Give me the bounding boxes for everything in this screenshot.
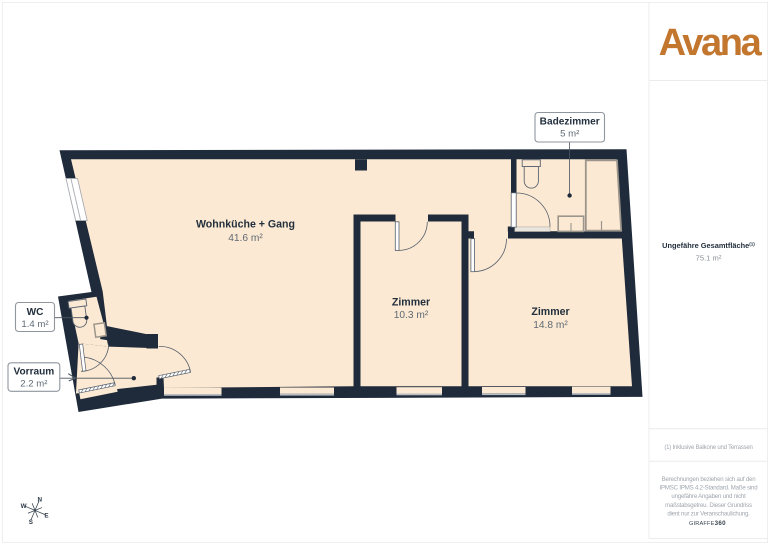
svg-text:14.8 m²: 14.8 m² [533, 320, 568, 331]
svg-text:1.4 m²: 1.4 m² [21, 319, 49, 330]
svg-text:2.2 m²: 2.2 m² [20, 378, 48, 389]
svg-text:41.6 m²: 41.6 m² [228, 233, 263, 244]
svg-text:GIRAFFE: GIRAFFE [689, 521, 715, 527]
svg-text:dient nur zur Veranschaulichun: dient nur zur Veranschaulichung. [667, 510, 750, 517]
svg-text:Vorraum: Vorraum [14, 366, 55, 377]
svg-text:Berechnungen beziehen sich auf: Berechnungen beziehen sich auf den [662, 476, 756, 483]
svg-text:E: E [44, 513, 48, 520]
svg-text:IPMSC IPMS 4.2-Standard. Maße: IPMSC IPMS 4.2-Standard. Maße sind [660, 485, 758, 492]
svg-text:WC: WC [27, 307, 45, 318]
svg-text:360: 360 [715, 520, 726, 527]
svg-text:Avana: Avana [659, 22, 763, 64]
svg-text:S: S [29, 519, 33, 526]
svg-text:75.1 m²: 75.1 m² [696, 253, 722, 262]
svg-text:10.3 m²: 10.3 m² [394, 310, 429, 321]
svg-text:Badezimmer: Badezimmer [540, 116, 600, 127]
svg-text:ungefähre Angaben und nicht: ungefähre Angaben und nicht [671, 493, 746, 500]
svg-text:Zimmer: Zimmer [531, 306, 569, 318]
svg-text:(1) Inklusive Balkone und Terr: (1) Inklusive Balkone und Terrassen [664, 445, 752, 451]
svg-text:N: N [38, 496, 43, 503]
svg-text:5 m²: 5 m² [560, 129, 580, 140]
svg-text:W: W [21, 503, 27, 510]
svg-text:Wohnküche + Gang: Wohnküche + Gang [196, 218, 295, 230]
svg-text:maßstabsgetreu. Dieser Grundri: maßstabsgetreu. Dieser Grundriss [665, 502, 752, 509]
svg-text:Ungefähre Gesamtfläche(1): Ungefähre Gesamtfläche(1) [662, 241, 755, 250]
svg-text:Zimmer: Zimmer [392, 296, 430, 308]
